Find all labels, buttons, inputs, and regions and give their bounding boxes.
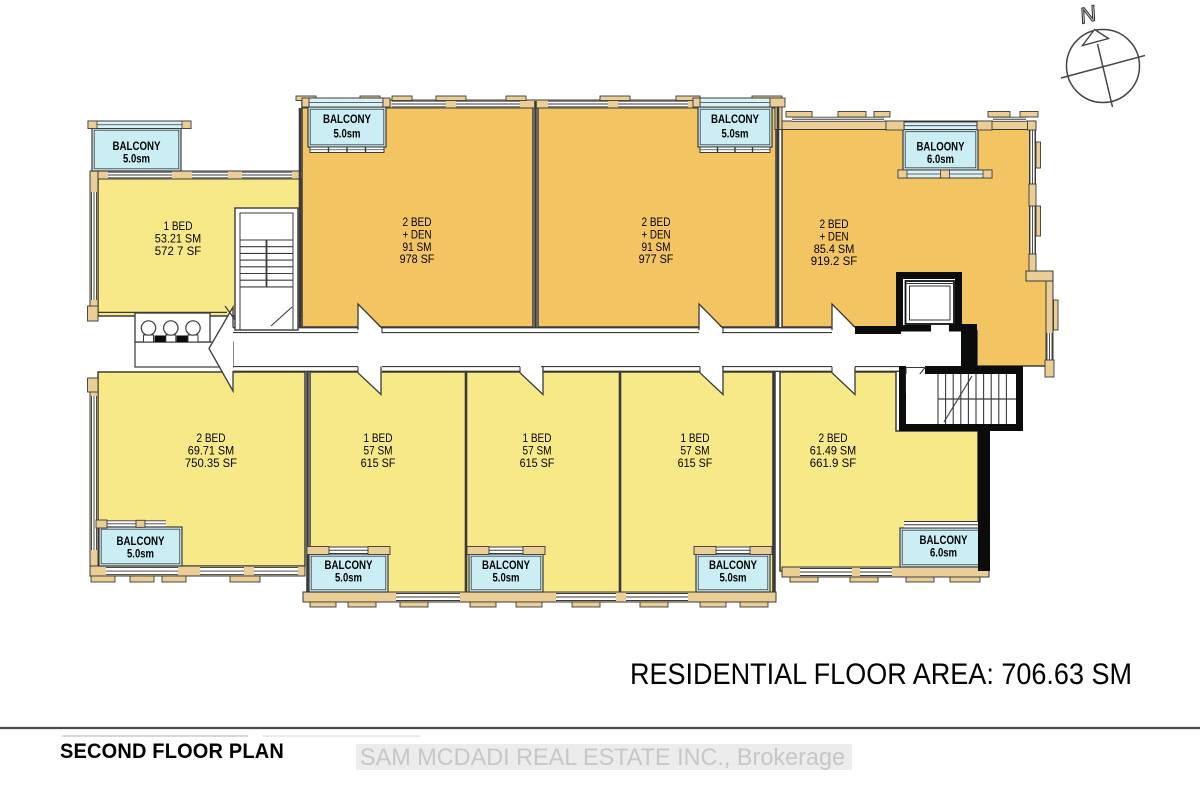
svg-text:977 SF: 977 SF [639, 252, 674, 266]
svg-text:572 7 SF: 572 7 SF [155, 244, 201, 258]
svg-text:SECOND FLOOR PLAN: SECOND FLOOR PLAN [60, 740, 284, 763]
svg-text:661.9 SF: 661.9 SF [810, 456, 856, 470]
svg-text:5.0sm: 5.0sm [722, 127, 749, 141]
svg-text:6.0sm: 6.0sm [930, 546, 957, 560]
svg-text:BALCONY: BALCONY [711, 112, 759, 126]
svg-text:978 SF: 978 SF [400, 252, 435, 266]
svg-text:5.0sm: 5.0sm [493, 571, 520, 585]
svg-text:SAM MCDADI REAL ESTATE INC., B: SAM MCDADI REAL ESTATE INC., Brokerage [360, 744, 845, 771]
svg-text:BALCONY: BALCONY [323, 112, 371, 126]
svg-text:RESIDENTIAL FLOOR AREA: 706.63: RESIDENTIAL FLOOR AREA: 706.63 SM [630, 658, 1132, 691]
svg-text:615 SF: 615 SF [520, 456, 555, 470]
svg-text:615 SF: 615 SF [678, 456, 713, 470]
svg-text:615 SF: 615 SF [361, 456, 396, 470]
svg-text:750.35 SF: 750.35 SF [185, 456, 237, 470]
svg-text:5.0sm: 5.0sm [335, 571, 362, 585]
svg-text:919.2 SF: 919.2 SF [811, 254, 857, 268]
svg-text:5.0sm: 5.0sm [334, 127, 361, 141]
svg-text:5.0sm: 5.0sm [123, 152, 150, 166]
svg-text:5.0sm: 5.0sm [720, 571, 747, 585]
svg-text:5.0sm: 5.0sm [127, 547, 154, 561]
svg-text:6.0sm: 6.0sm [927, 152, 954, 166]
